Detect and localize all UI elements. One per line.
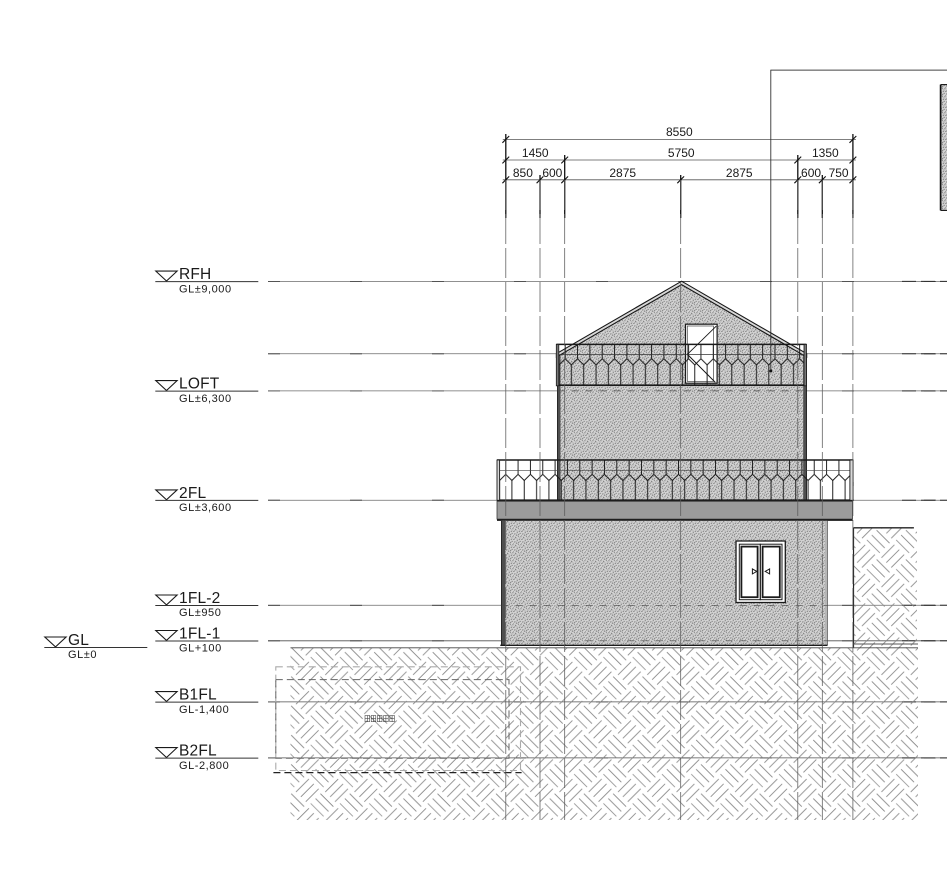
svg-text:1350: 1350 (812, 146, 839, 160)
svg-text:GL-2,800: GL-2,800 (179, 760, 229, 772)
svg-text:B1FL: B1FL (179, 687, 217, 704)
svg-text:GL±9,000: GL±9,000 (179, 283, 232, 295)
svg-text:GL+100: GL+100 (179, 643, 222, 655)
svg-text:B2FL: B2FL (179, 743, 217, 760)
svg-text:600: 600 (542, 166, 562, 180)
svg-text:2875: 2875 (726, 166, 753, 180)
svg-text:850: 850 (513, 166, 533, 180)
svg-text:1450: 1450 (522, 146, 549, 160)
svg-text:2FL: 2FL (179, 485, 206, 502)
svg-text:GL±0: GL±0 (68, 649, 97, 661)
svg-text:GL±950: GL±950 (179, 607, 221, 619)
svg-text:GL: GL (68, 632, 89, 649)
svg-text:GL±3,600: GL±3,600 (179, 502, 232, 514)
svg-text:8550: 8550 (666, 125, 693, 139)
svg-text:1FL-2: 1FL-2 (179, 590, 221, 607)
svg-text:750: 750 (829, 166, 849, 180)
svg-text:5750: 5750 (668, 146, 695, 160)
svg-text:RFH: RFH (179, 266, 211, 283)
svg-text:600: 600 (801, 166, 821, 180)
svg-text:GL-1,400: GL-1,400 (179, 704, 229, 716)
svg-text:GL±6,300: GL±6,300 (179, 393, 232, 405)
svg-text:2875: 2875 (609, 166, 636, 180)
svg-text:1FL-1: 1FL-1 (179, 626, 221, 643)
svg-text:LOFT: LOFT (179, 376, 220, 393)
